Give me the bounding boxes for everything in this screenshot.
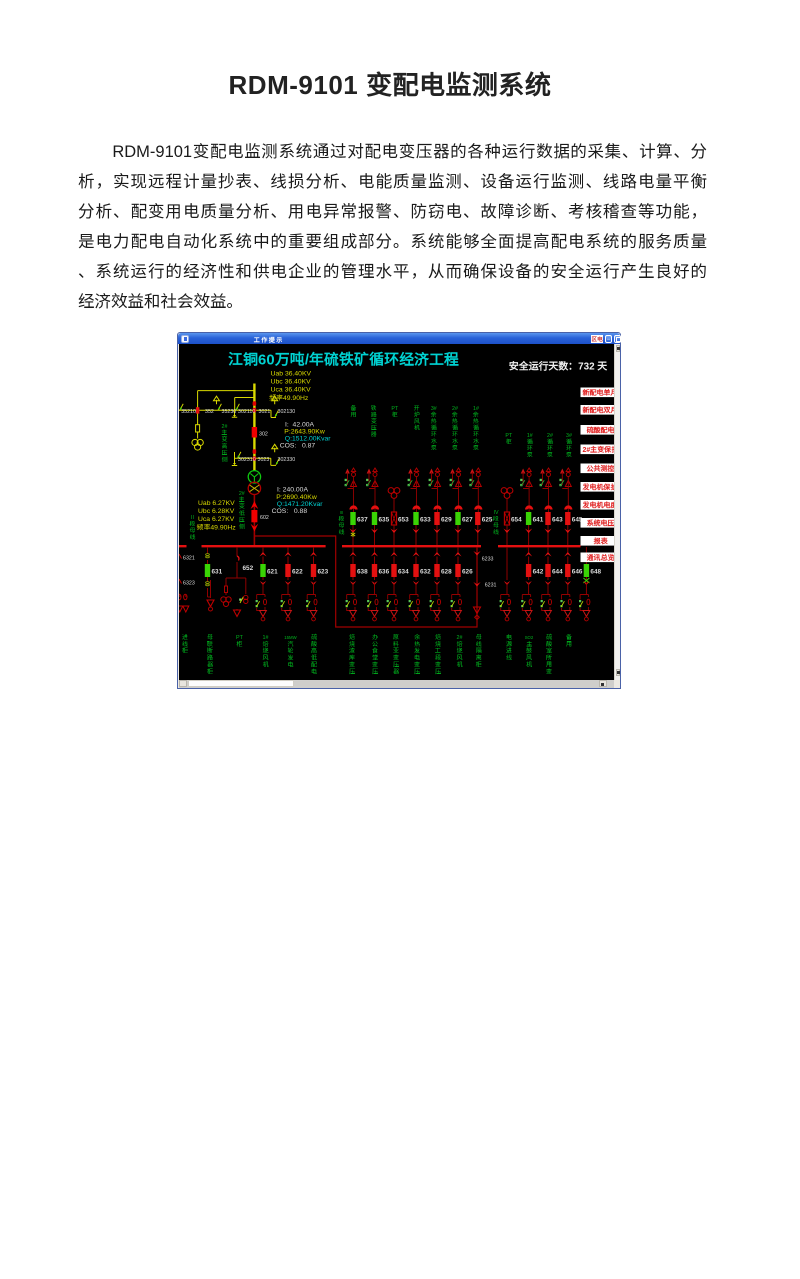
- svg-text:632: 632: [420, 568, 431, 575]
- svg-text:发电机电度: 发电机电度: [582, 500, 614, 510]
- svg-text:柜: 柜: [236, 638, 242, 647]
- svg-text:6233: 6233: [482, 556, 494, 562]
- svg-text:3021: 3021: [259, 408, 271, 414]
- svg-text:652: 652: [243, 565, 254, 572]
- svg-text:2#主变保护: 2#主变保护: [583, 445, 614, 455]
- svg-text:频率49.90Hz: 频率49.90Hz: [268, 391, 309, 401]
- svg-text:637: 637: [357, 516, 368, 523]
- svg-text:623: 623: [318, 568, 329, 575]
- svg-text:6231: 6231: [485, 582, 497, 588]
- svg-text:COS: 0.87: COS: 0.87: [280, 439, 316, 449]
- svg-text:发电机保护: 发电机保护: [582, 482, 614, 492]
- svg-text:302: 302: [259, 431, 268, 437]
- svg-text:302110: 302110: [238, 408, 255, 414]
- svg-text:646: 646: [572, 568, 583, 575]
- svg-text:通讯总览: 通讯总览: [586, 553, 614, 563]
- svg-text:641: 641: [533, 516, 544, 523]
- svg-text:压: 压: [372, 666, 379, 675]
- svg-text:柜: 柜: [476, 659, 482, 668]
- svg-text:629: 629: [441, 516, 452, 523]
- svg-text:634: 634: [398, 568, 409, 575]
- svg-text:628: 628: [441, 568, 452, 575]
- svg-text:泵: 泵: [565, 449, 572, 458]
- svg-text:621: 621: [267, 568, 278, 575]
- svg-text:压: 压: [414, 666, 421, 675]
- svg-text:安全运行天数：732 天: 安全运行天数：732 天: [509, 358, 607, 372]
- svg-text:302310: 302310: [238, 456, 256, 462]
- svg-text:机: 机: [526, 659, 532, 668]
- svg-text:报表: 报表: [593, 536, 609, 546]
- svg-text:用: 用: [351, 409, 357, 418]
- svg-text:631: 631: [212, 568, 223, 575]
- svg-text:器: 器: [370, 429, 377, 438]
- svg-text:线: 线: [339, 526, 346, 535]
- svg-text:泵: 泵: [526, 449, 533, 458]
- svg-text:6321: 6321: [183, 555, 195, 561]
- svg-text:江铜60万吨/年硫铁矿循环经济工程: 江铜60万吨/年硫铁矿循环经济工程: [228, 348, 459, 369]
- svg-text:302130: 302130: [278, 408, 296, 414]
- svg-text:泵: 泵: [472, 442, 479, 451]
- svg-text:公共测控: 公共测控: [587, 464, 614, 474]
- svg-text:系统电压: 系统电压: [587, 518, 614, 528]
- svg-text:频率49.90Hz: 频率49.90Hz: [196, 521, 237, 531]
- svg-text:新配电单月: 新配电单月: [582, 388, 614, 398]
- svg-text:625: 625: [482, 516, 493, 523]
- svg-text:643: 643: [552, 516, 563, 523]
- svg-text:机: 机: [262, 659, 268, 668]
- svg-text:泵: 泵: [546, 449, 553, 458]
- svg-text:35210: 35210: [181, 408, 196, 414]
- svg-text:压: 压: [435, 666, 442, 675]
- svg-text:机: 机: [414, 422, 420, 431]
- svg-text:泵: 泵: [451, 442, 458, 451]
- svg-text:柜: 柜: [207, 666, 213, 675]
- svg-text:侧: 侧: [239, 521, 245, 530]
- svg-text:627: 627: [462, 516, 473, 523]
- svg-text:泵: 泵: [430, 442, 437, 451]
- svg-text:电: 电: [287, 659, 293, 668]
- svg-text:352: 352: [205, 408, 214, 414]
- svg-text:654: 654: [511, 516, 522, 523]
- svg-text:638: 638: [357, 568, 368, 575]
- svg-text:压: 压: [349, 666, 356, 675]
- svg-text:硫酸配电: 硫酸配电: [586, 425, 614, 435]
- svg-text:柜: 柜: [182, 645, 188, 654]
- svg-text:626: 626: [462, 568, 473, 575]
- svg-text:636: 636: [379, 568, 390, 575]
- svg-text:633: 633: [420, 516, 431, 523]
- svg-text:变: 变: [546, 666, 552, 675]
- svg-text:653: 653: [398, 516, 409, 523]
- svg-text:622: 622: [292, 568, 303, 575]
- svg-text:器: 器: [392, 666, 399, 675]
- svg-text:35230: 35230: [222, 408, 237, 414]
- svg-text:线: 线: [493, 526, 500, 535]
- svg-text:用: 用: [566, 638, 572, 647]
- svg-text:642: 642: [533, 568, 544, 575]
- svg-text:COS: 0.88: COS: 0.88: [272, 504, 308, 514]
- svg-text:新配电双月: 新配电双月: [582, 405, 614, 415]
- svg-text:柜: 柜: [392, 409, 398, 418]
- svg-text:线: 线: [506, 652, 513, 661]
- svg-text:648: 648: [590, 568, 601, 575]
- svg-text:电: 电: [311, 666, 317, 675]
- svg-text:6323: 6323: [183, 580, 195, 586]
- svg-text:302330: 302330: [278, 456, 296, 462]
- svg-text:635: 635: [379, 516, 390, 523]
- svg-text:柜: 柜: [506, 436, 512, 445]
- svg-text:602: 602: [260, 515, 269, 521]
- svg-text:侧: 侧: [222, 454, 228, 463]
- svg-text:3023: 3023: [258, 456, 270, 462]
- svg-text:线: 线: [190, 531, 197, 540]
- svg-text:机: 机: [456, 659, 462, 668]
- svg-text:644: 644: [552, 568, 563, 575]
